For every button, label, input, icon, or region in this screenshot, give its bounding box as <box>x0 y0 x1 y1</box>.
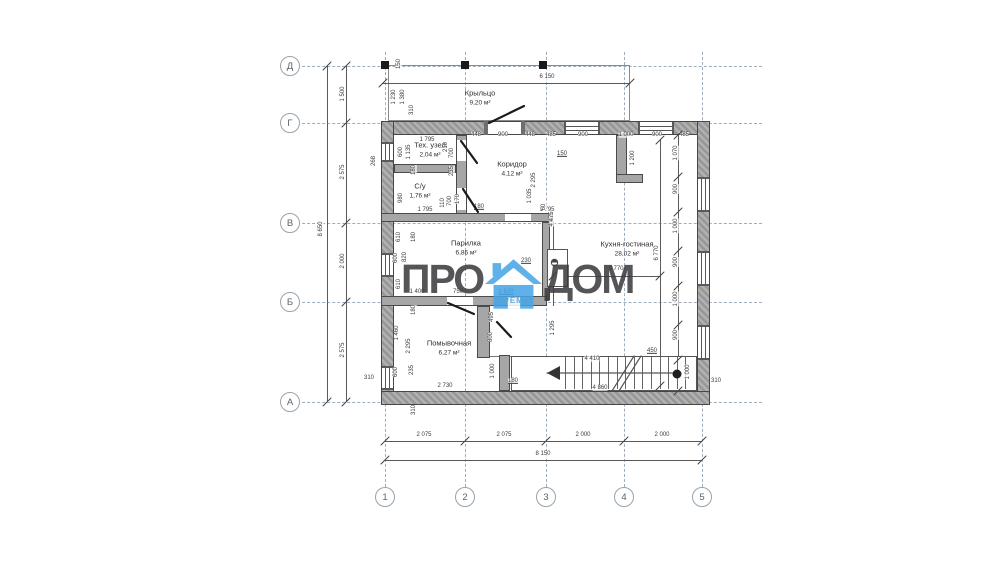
dim-label: 485 <box>546 132 556 138</box>
dim-label: 610 <box>396 232 402 242</box>
window-end-cap <box>698 177 709 179</box>
dim-label: 2 075 <box>496 432 511 438</box>
dim-label: 268 <box>371 156 377 166</box>
window-frame-line <box>385 142 386 162</box>
dim-label: 600 <box>393 367 399 377</box>
room-area-label: 9,20 м² <box>469 100 490 107</box>
stair-tread <box>677 357 678 389</box>
dim-label: 1 000 <box>685 364 691 379</box>
window-frame-line <box>638 130 674 131</box>
window-end-cap <box>598 122 600 134</box>
dim-label: 600 <box>393 253 399 263</box>
window-end-cap <box>382 160 393 162</box>
dim-label: 700 <box>449 148 455 158</box>
dimension-line <box>327 66 328 402</box>
porch-column <box>461 61 469 69</box>
dim-label: 1 200 <box>630 150 636 165</box>
wall <box>499 355 510 391</box>
window-end-cap <box>638 122 640 134</box>
dim-label: 4 410 <box>584 356 599 362</box>
window-frame-line <box>389 366 390 390</box>
room-label: С/у <box>414 182 425 191</box>
window-end-cap <box>382 388 393 390</box>
stair-tread <box>660 357 661 389</box>
window-frame-line <box>385 253 386 277</box>
dim-label: 2 000 <box>654 432 669 438</box>
dim-label: 8 150 <box>535 451 550 457</box>
dim-label: 2 295 <box>531 172 537 187</box>
window-frame-line <box>705 177 706 212</box>
window-frame-line <box>564 126 600 127</box>
dim-label: 495 <box>489 312 495 322</box>
porch-column <box>381 61 389 69</box>
dim-label: 450 <box>647 348 657 354</box>
stair-tread <box>651 357 652 389</box>
room-area-label: 2,04 м² <box>419 152 440 159</box>
room-label: Помывочная <box>427 339 471 348</box>
dim-label: 1 380 <box>400 89 406 104</box>
door-jamb <box>484 121 488 135</box>
room-label: Крыльцо <box>465 89 496 98</box>
porch-column <box>539 61 547 69</box>
dim-label: 900 <box>498 132 508 138</box>
dim-label: 1 135 <box>406 144 412 159</box>
dim-label: 2 575 <box>340 342 346 357</box>
dim-label: 980 <box>398 193 404 203</box>
stair-tread <box>625 357 626 389</box>
window <box>382 366 393 390</box>
axis-marker: Г <box>280 113 300 133</box>
dim-label: 2 295 <box>406 338 412 353</box>
watermark-text-right: ДОМ <box>544 259 633 299</box>
window-frame-line <box>705 325 706 360</box>
axis-marker: 1 <box>375 487 395 507</box>
dim-label: 180 <box>474 204 484 210</box>
dimension-line <box>383 83 630 84</box>
dim-label: 235 <box>449 166 455 176</box>
dimension-line <box>385 441 702 442</box>
house-icon: РЕМ <box>485 259 542 309</box>
window-end-cap <box>382 275 393 277</box>
window <box>382 253 393 277</box>
dim-label: 170 <box>455 194 461 204</box>
dim-label: 110 <box>440 198 446 208</box>
dim-label: 485 <box>679 132 689 138</box>
dim-label: 235 <box>409 365 415 375</box>
window-end-cap <box>698 251 709 253</box>
door-opening <box>505 214 531 221</box>
dim-label: 1 000 <box>673 218 679 233</box>
room-area-label: 1,76 м² <box>409 193 430 200</box>
window-frame-line <box>564 130 600 131</box>
dim-label: 448 <box>471 132 481 138</box>
dim-label: 180 <box>411 165 417 175</box>
dim-label: 150 <box>557 151 567 157</box>
dim-label: 1 000 <box>618 132 633 138</box>
window-end-cap <box>564 122 566 134</box>
dim-label: 2 000 <box>575 432 590 438</box>
dim-label: 1 000 <box>673 291 679 306</box>
axis-marker: А <box>280 392 300 412</box>
grid-line-horizontal <box>282 223 762 224</box>
axis-marker: 3 <box>536 487 556 507</box>
axis-marker: Б <box>280 292 300 312</box>
axis-marker: 5 <box>692 487 712 507</box>
dim-label: 900 <box>673 330 679 340</box>
stair-tread <box>582 357 583 389</box>
dim-label: 900 <box>673 257 679 267</box>
window-end-cap <box>698 358 709 360</box>
dim-label: 2 575 <box>340 164 346 179</box>
stair-tread <box>617 357 618 389</box>
window-frame-line <box>701 325 702 360</box>
stair-tread <box>668 357 669 389</box>
dim-label: 700 <box>447 196 453 206</box>
room-area-label: 6,27 м² <box>438 350 459 357</box>
door-opening <box>457 140 466 161</box>
dim-label: 900 <box>652 132 662 138</box>
watermark-text-left: ПРО <box>401 259 483 299</box>
room-area-label: 4,12 м² <box>501 171 522 178</box>
room-label: Кухня-гостиная <box>600 240 653 249</box>
dim-label: 1 230 <box>391 89 397 104</box>
axis-marker: 4 <box>614 487 634 507</box>
window <box>698 177 709 212</box>
dim-label: 1 070 <box>673 145 679 160</box>
dim-label: 1 000 <box>490 363 496 378</box>
window-end-cap <box>382 253 393 255</box>
floorplan-canvas: ПРО РЕМ ДОМ 6 1501 7954489004484859001 0… <box>0 0 1000 563</box>
watermark-logo: ПРО РЕМ ДОМ <box>401 259 633 309</box>
dim-label: 180 <box>411 232 417 242</box>
dim-label: 60 <box>541 204 547 211</box>
dim-label: 310 <box>364 375 374 381</box>
window-end-cap <box>382 142 393 144</box>
window-frame-line <box>701 251 702 286</box>
dim-label: 8 650 <box>318 221 324 236</box>
dim-label: 900 <box>578 132 588 138</box>
axis-marker: В <box>280 213 300 233</box>
window-frame-line <box>385 366 386 390</box>
axis-marker: Д <box>280 56 300 76</box>
window-frame-line <box>701 177 702 212</box>
axis-marker: 2 <box>455 487 475 507</box>
window-frame-line <box>389 253 390 277</box>
dim-label: 800 <box>488 332 494 342</box>
window <box>382 142 393 162</box>
window <box>698 251 709 286</box>
room-label: Тех. узел <box>414 141 446 150</box>
dim-label: 310 <box>411 405 417 415</box>
dim-label: 4 475 <box>549 211 555 226</box>
dim-label: 448 <box>525 132 535 138</box>
window-end-cap <box>698 284 709 286</box>
room-label: Парилка <box>451 239 481 248</box>
dim-label: 1 500 <box>340 86 346 101</box>
window-frame-line <box>638 126 674 127</box>
dimension-line <box>385 460 702 461</box>
dim-label: 6 770 <box>654 245 660 260</box>
window-frame-line <box>389 142 390 162</box>
dim-label: 1 460 <box>394 325 400 340</box>
stair-tread <box>574 357 575 389</box>
stair-tread <box>565 357 566 389</box>
window-end-cap <box>672 122 674 134</box>
window-end-cap <box>698 210 709 212</box>
dim-label: 2 000 <box>340 253 346 268</box>
dim-label: 900 <box>673 184 679 194</box>
window <box>698 325 709 360</box>
watermark-subtext: РЕМ <box>504 296 524 305</box>
window-frame-line <box>705 251 706 286</box>
dim-label: 2 730 <box>437 383 452 389</box>
window-end-cap <box>382 366 393 368</box>
stair-tread <box>608 357 609 389</box>
dim-label: 1 295 <box>550 320 556 335</box>
dim-label: 1 035 <box>527 188 533 203</box>
dim-label: 1 795 <box>417 207 432 213</box>
dim-label: 600 <box>398 147 404 157</box>
porch-outline <box>388 65 630 121</box>
room-label: Коридор <box>497 160 527 169</box>
dim-label: 310 <box>409 105 415 115</box>
wall <box>381 391 710 405</box>
dim-label: 4 860 <box>592 385 607 391</box>
dim-label: 310 <box>711 378 721 384</box>
dimension-line <box>660 140 661 386</box>
dim-label: 150 <box>396 59 402 69</box>
stair-tread <box>634 357 635 389</box>
door-leaf <box>497 322 511 337</box>
dim-label: 180 <box>508 378 518 384</box>
dim-label: 2 075 <box>416 432 431 438</box>
stair-tread <box>642 357 643 389</box>
window-end-cap <box>698 325 709 327</box>
dim-label: 6 150 <box>539 74 554 80</box>
wall <box>394 164 456 173</box>
wall <box>616 174 643 183</box>
